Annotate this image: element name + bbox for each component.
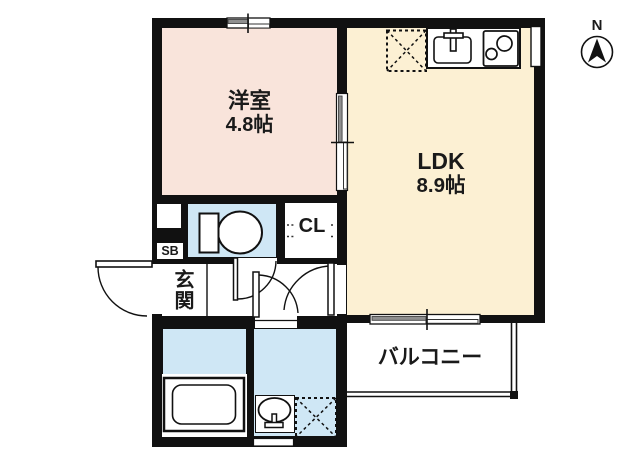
- western-room-area: 4.8帖: [177, 114, 322, 137]
- entrance-door: [96, 261, 152, 316]
- western-room-name: 洋室: [177, 89, 322, 114]
- entrance-label: 玄関: [167, 264, 193, 316]
- ldk-label: LDK 8.9帖: [371, 148, 511, 198]
- toilet-icon: [200, 212, 263, 254]
- ldk-area: 8.9帖: [371, 174, 511, 198]
- ldk-name: LDK: [371, 148, 511, 174]
- kitchen-counter: [426, 28, 520, 68]
- window-western-top: [227, 14, 270, 34]
- doorway-threshold: [255, 316, 297, 328]
- closet-label: CL: [295, 215, 329, 238]
- ldk-door: [284, 263, 334, 315]
- washbasin-icon: [259, 398, 291, 428]
- stove-icon: [484, 31, 519, 66]
- window-washroom-slit: [254, 439, 294, 447]
- washroom-door: [253, 272, 298, 317]
- balcony-label: バルコニー: [360, 346, 500, 370]
- north-compass-icon: [582, 37, 613, 68]
- window-kitchen-slit: [531, 27, 541, 67]
- washing-machine-space-icon: [296, 398, 336, 437]
- refrigerator-space-icon: [387, 31, 426, 72]
- floor-plan: SB: [0, 0, 640, 469]
- north-label: N: [588, 17, 606, 34]
- bathtub-icon: [164, 378, 244, 431]
- window-balcony: [370, 309, 480, 330]
- sliding-door-western-ldk: [331, 94, 354, 191]
- western-room-label: 洋室 4.8帖: [177, 89, 322, 137]
